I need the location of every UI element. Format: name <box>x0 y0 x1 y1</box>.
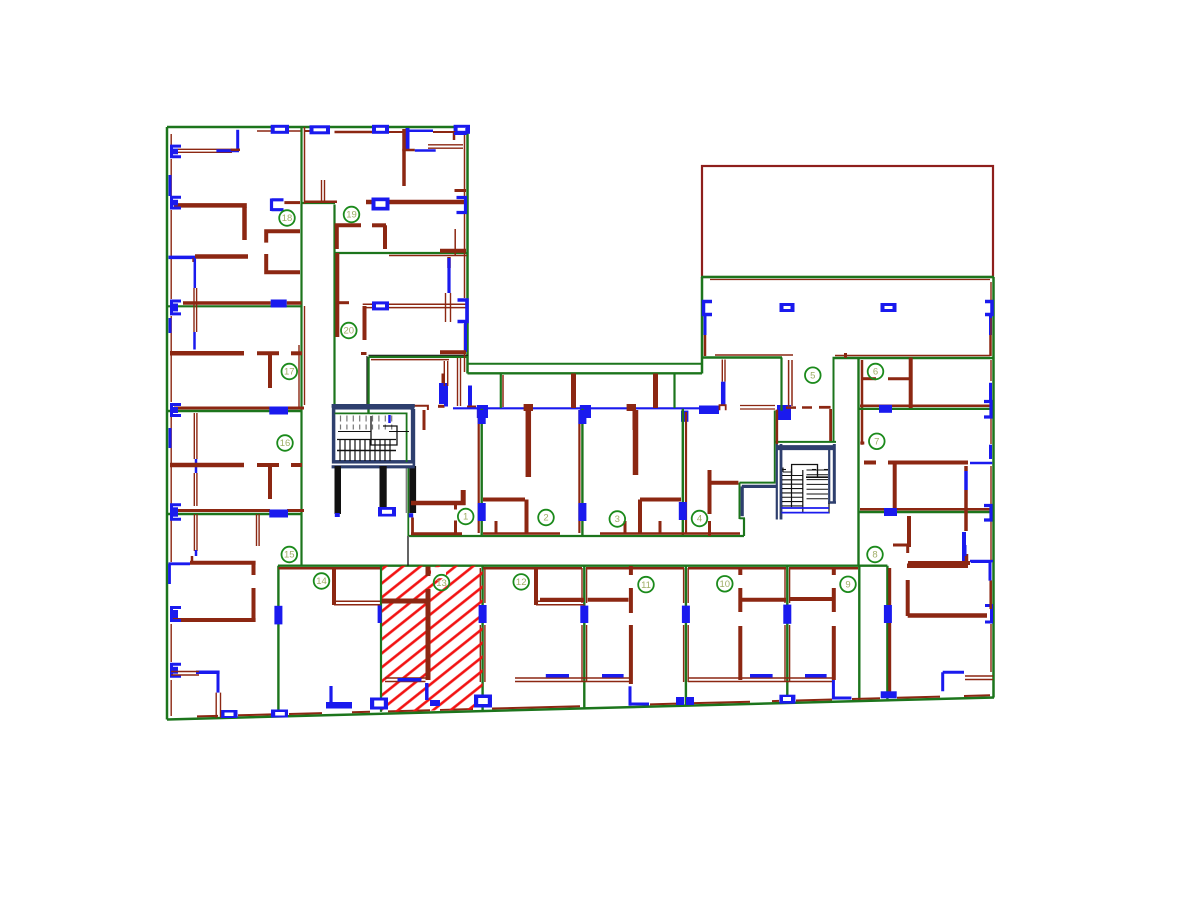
svg-text:5: 5 <box>810 370 815 381</box>
svg-text:13: 13 <box>436 578 447 589</box>
svg-text:20: 20 <box>344 326 355 337</box>
svg-text:14: 14 <box>316 576 327 587</box>
svg-text:19: 19 <box>346 210 357 221</box>
svg-text:7: 7 <box>874 437 879 448</box>
svg-text:18: 18 <box>282 213 293 224</box>
svg-text:1: 1 <box>463 512 468 523</box>
svg-text:6: 6 <box>873 367 878 378</box>
svg-text:11: 11 <box>641 580 651 591</box>
svg-text:9: 9 <box>845 580 850 591</box>
svg-text:8: 8 <box>872 550 877 561</box>
svg-text:12: 12 <box>516 577 527 588</box>
svg-text:17: 17 <box>284 367 295 378</box>
svg-text:10: 10 <box>720 579 731 590</box>
svg-text:3: 3 <box>615 514 620 525</box>
svg-text:4: 4 <box>697 514 702 525</box>
svg-text:15: 15 <box>284 550 295 561</box>
svg-text:2: 2 <box>543 513 548 524</box>
svg-text:16: 16 <box>280 438 291 449</box>
